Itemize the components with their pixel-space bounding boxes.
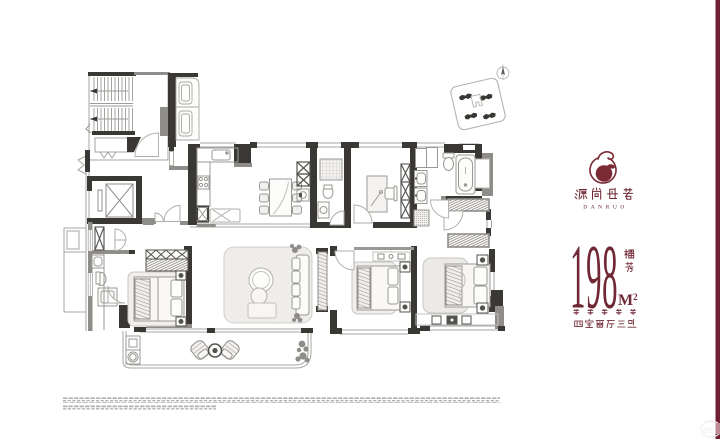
svg-text:DANRUO: DANRUO <box>583 205 628 211</box>
svg-text:dd: dd <box>703 425 713 435</box>
svg-text:M2: M2 <box>618 292 638 309</box>
